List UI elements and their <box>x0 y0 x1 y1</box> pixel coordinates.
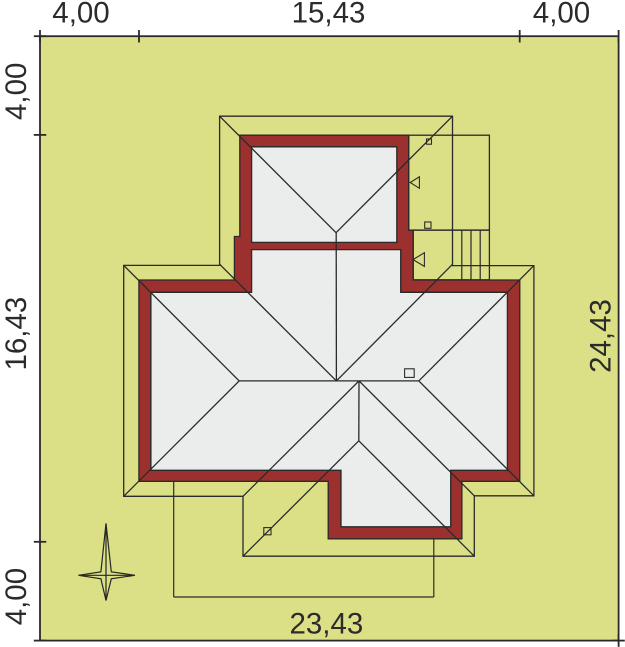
svg-text:15,43: 15,43 <box>292 0 366 30</box>
svg-text:4,00: 4,00 <box>52 0 109 30</box>
svg-text:4,00: 4,00 <box>0 63 33 120</box>
svg-text:24,43: 24,43 <box>585 299 618 373</box>
svg-text:4,00: 4,00 <box>533 0 590 30</box>
svg-text:4,00: 4,00 <box>0 568 33 625</box>
svg-text:23,43: 23,43 <box>289 608 363 641</box>
svg-text:16,43: 16,43 <box>0 297 33 371</box>
